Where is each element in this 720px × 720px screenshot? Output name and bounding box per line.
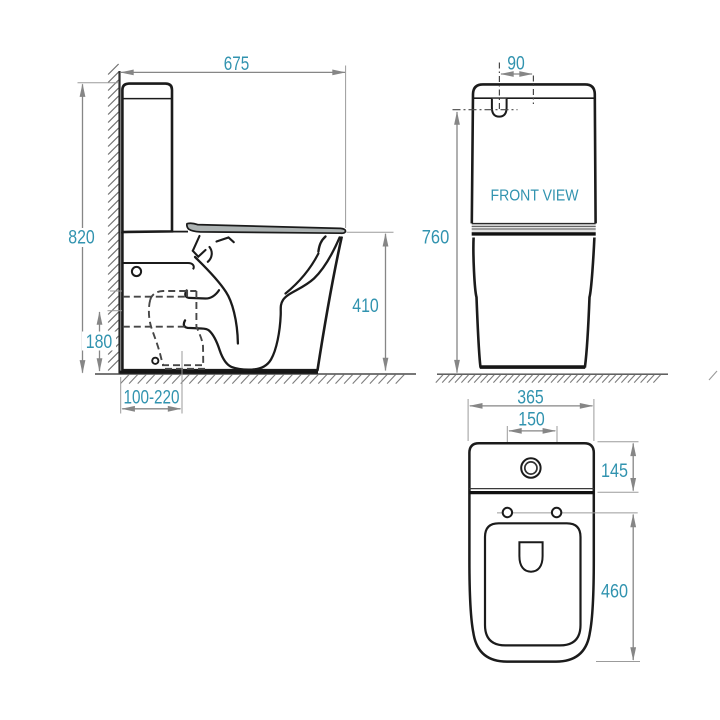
svg-text:90: 90	[507, 53, 525, 75]
svg-text:820: 820	[68, 227, 95, 249]
svg-text:100-220: 100-220	[124, 387, 180, 409]
svg-text:145: 145	[601, 460, 628, 482]
svg-text:410: 410	[352, 295, 379, 317]
svg-text:675: 675	[224, 53, 250, 75]
svg-text:365: 365	[517, 387, 544, 409]
svg-text:FRONT VIEW: FRONT VIEW	[491, 188, 580, 205]
svg-text:460: 460	[601, 581, 628, 603]
svg-text:180: 180	[86, 331, 113, 353]
svg-text:760: 760	[422, 227, 450, 249]
svg-text:150: 150	[518, 409, 545, 431]
